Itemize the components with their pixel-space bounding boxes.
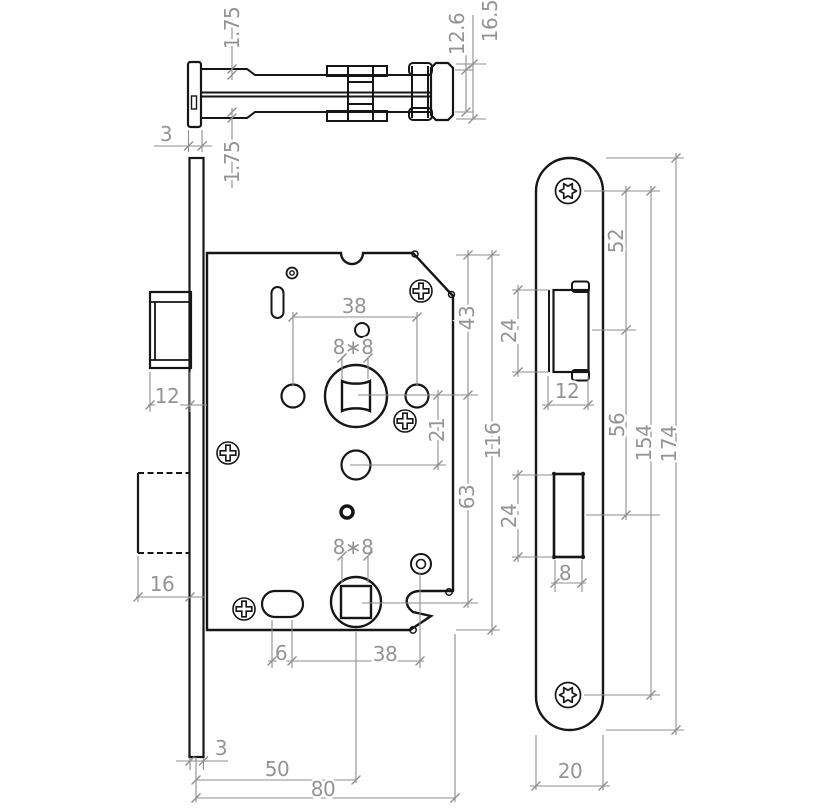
dim-label-latch-width: 12 [155, 384, 179, 408]
dim-label-latch-cutout-width: 12 [555, 379, 579, 403]
latch-cutout [549, 282, 589, 381]
spindle-square-hole [342, 381, 370, 411]
lock-technical-drawing: 1.75 1.75 3 12.6 16.5 [0, 0, 824, 809]
rivet [341, 506, 353, 518]
fixing-hole-left [282, 385, 305, 408]
dim-label-body-height: 12.6 [445, 13, 469, 56]
lower-follower [331, 577, 381, 627]
deadbolt-front [138, 473, 190, 553]
dim-label-slot-to-spindle: 38 [373, 642, 397, 666]
case-body-section [201, 69, 430, 118]
dim-label-deadbolt-cutout-width: 8 [559, 561, 571, 585]
dim-label-hole-spacing: 38 [342, 294, 366, 318]
drawing-canvas: 1.75 1.75 3 12.6 16.5 [0, 0, 824, 809]
faceplate-view: 52 24 12 56 154 174 24 8 20 [497, 153, 684, 790]
phillips-screw-icon [217, 442, 239, 464]
dim-label-total-height: 16.5 [478, 0, 502, 42]
phillips-screw-icon [394, 410, 416, 432]
torx-screw-icon [556, 683, 581, 708]
dim-label-deadbolt-cutout-height: 24 [497, 504, 521, 528]
latch-bolt-front [150, 292, 191, 368]
deadbolt-cutout [552, 472, 585, 559]
dim-label-faceplate-thickness: 3 [160, 122, 172, 146]
faceplate-outline [536, 158, 603, 730]
dim-label-slot-offset: 6 [275, 641, 287, 665]
horizontal-slot [262, 591, 303, 617]
dim-label-top-to-spindle: 43 [455, 306, 479, 330]
dim-label-plate-length: 174 [657, 426, 681, 463]
front-view: 12 16 38 8∗8 43 21 116 63 8∗8 6 38 3 50 … [136, 158, 505, 802]
dim-label-backset: 50 [265, 757, 289, 781]
dimension-ticks [134, 60, 681, 803]
dim-label-spindle-to-hole: 21 [425, 418, 449, 442]
phillips-screw-icon [233, 598, 255, 620]
dim-label-spindle-square-bottom: 8∗8 [333, 535, 374, 559]
bushing-inner [417, 560, 426, 569]
pin-hole [287, 268, 298, 279]
faceplate-edge [188, 62, 201, 127]
dim-label-case-depth: 80 [311, 777, 335, 801]
bushing-outer [411, 554, 431, 574]
dim-label-lip-bottom: 1.75 [220, 141, 244, 184]
faceplate-front [190, 158, 204, 757]
handle-follower [325, 365, 387, 427]
lower-spindle-square [341, 586, 371, 618]
dim-label-latch-to-deadbolt: 56 [605, 413, 629, 437]
vertical-slot [272, 287, 284, 318]
dim-label-latch-cutout-height: 24 [497, 319, 521, 343]
dim-label-faceplate-thickness-bottom: 3 [215, 736, 227, 760]
dim-label-plate-width: 20 [558, 759, 582, 783]
dim-label-spindle-square-top: 8∗8 [333, 335, 374, 359]
fixing-hole-right [406, 385, 429, 408]
pin-hole-center [290, 271, 294, 275]
faceplate-dimension-lines [512, 153, 684, 790]
dim-label-deadbolt-width: 16 [150, 572, 174, 596]
dim-label-screw-spacing: 154 [632, 425, 656, 462]
torx-screw-icon [556, 179, 581, 204]
dim-label-case-height: 116 [481, 423, 505, 460]
dim-label-spindle-to-lower: 63 [455, 485, 479, 509]
dim-label-lip-top: 1.75 [220, 7, 244, 50]
dim-label-screw-to-latch: 52 [604, 229, 628, 253]
top-section-view: 1.75 1.75 3 12.6 16.5 [154, 0, 502, 188]
faceplate-detail [192, 96, 197, 109]
phillips-screw-icon [410, 280, 432, 302]
